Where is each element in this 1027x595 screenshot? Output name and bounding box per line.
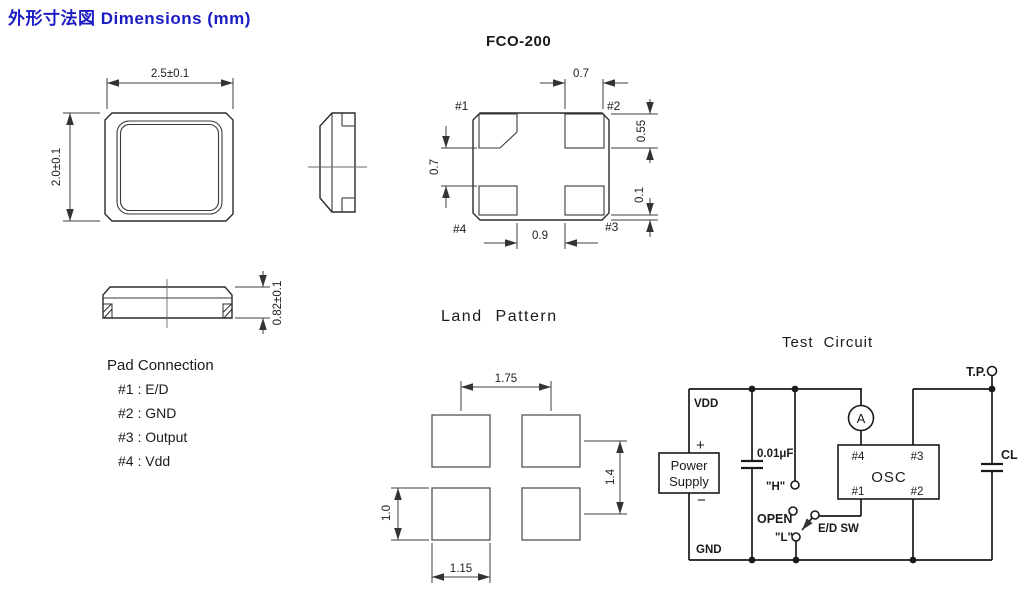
junction-node (793, 557, 800, 564)
dim-land-pad-width: 1.15 (450, 563, 472, 575)
land-pad-height-dimension: 1.0 (381, 488, 429, 540)
junction-node (749, 386, 756, 393)
vdd-label: VDD (694, 398, 718, 410)
thickness-dimension: 0.82±0.1 (235, 271, 284, 334)
pad-connection-item-4: #4 : Vdd (118, 453, 170, 469)
front-outline (103, 287, 232, 318)
package-top-inner-2 (121, 125, 219, 211)
row-gap-dimension: 0.7 (429, 126, 477, 208)
height-dimension: 2.0±0.1 (51, 113, 100, 221)
package-front-view: 0.82±0.1 (103, 271, 284, 334)
datasheet-drawing: 外形寸法図 Dimensions (mm) FCO-200 2.5±0.1 2.… (0, 0, 1027, 595)
h-level-label: "H" (766, 481, 785, 493)
pad-connection: Pad Connection #1 : E/D #2 : GND #3 : Ou… (107, 357, 214, 469)
land-pad-top-left (432, 415, 490, 467)
pad-4 (479, 186, 517, 215)
package-side-view (308, 113, 367, 212)
dim-row-gap: 0.7 (429, 159, 441, 175)
osc-label: OSC (871, 469, 907, 486)
package-top-view: 2.5±0.1 2.0±0.1 (51, 68, 233, 221)
pad-connection-item-2: #2 : GND (118, 405, 176, 421)
col-gap-dimension: 0.9 (484, 223, 598, 249)
ammeter-label: A (857, 411, 866, 426)
junction-node (989, 386, 996, 393)
osc-pin3-label: #3 (911, 451, 924, 463)
power-supply-line1: Power (671, 458, 709, 473)
land-pad-bottom-right (522, 488, 580, 540)
land-pattern: Land Pattern 1.75 1.4 1.0 1.15 (381, 308, 627, 583)
switch-arm (802, 518, 812, 530)
junction-node (910, 557, 917, 564)
side-outline (320, 113, 355, 212)
dim-pad-height: 0.55 (636, 120, 648, 142)
pad-connection-title: Pad Connection (107, 357, 214, 374)
land-pattern-title: Land Pattern (441, 308, 558, 325)
land-pad-width-dimension: 1.15 (432, 543, 490, 583)
open-label: OPEN (757, 512, 792, 526)
pad-2 (565, 114, 604, 148)
dim-row-pitch: 1.4 (605, 468, 617, 485)
pad-connection-item-3: #3 : Output (118, 429, 187, 445)
h-terminal (791, 481, 799, 489)
part-number: FCO-200 (486, 33, 551, 50)
pad-connection-item-1: #1 : E/D (118, 381, 169, 397)
package-top-outline (105, 113, 233, 221)
power-supply-line2: Supply (669, 474, 709, 489)
pad-1 (479, 114, 517, 148)
dim-pad-width: 0.7 (573, 68, 589, 80)
l-terminal (792, 533, 800, 541)
switch-pole-terminal (811, 511, 819, 519)
row-pitch-dimension: 1.4 (584, 441, 627, 514)
dim-edge-gap: 0.1 (634, 187, 646, 203)
ed-switch-label: E/D SW (818, 523, 859, 535)
l-level-label: "L" (775, 532, 793, 544)
bypass-cap-label: 0.01μF (757, 448, 793, 460)
osc-pin1-label: #1 (852, 486, 865, 498)
osc-pin2-label: #2 (911, 486, 924, 498)
junction-node (749, 557, 756, 564)
pad-1-label: #1 (455, 99, 469, 113)
gnd-label: GND (696, 544, 722, 556)
test-point-terminal (988, 367, 997, 376)
bottom-outline (473, 113, 609, 220)
dim-thickness: 0.82±0.1 (272, 281, 284, 326)
page-title: 外形寸法図 Dimensions (mm) (8, 8, 251, 28)
width-dimension: 2.5±0.1 (107, 68, 233, 109)
test-point-label: T.P. (966, 365, 986, 379)
plus-label: + (696, 437, 705, 454)
pad-3 (565, 186, 604, 215)
package-top-inner-1 (117, 121, 222, 214)
col-pitch-dimension: 1.75 (461, 373, 551, 411)
test-circuit: Test Circuit Power Supply + − VDD GND 0.… (659, 334, 1018, 563)
load-cap-label: CL (1001, 448, 1018, 462)
land-pad-bottom-left (432, 488, 490, 540)
pad-3-label: #3 (605, 220, 619, 234)
dim-height: 2.0±0.1 (51, 148, 63, 186)
minus-label: − (697, 492, 706, 509)
test-circuit-title: Test Circuit (782, 334, 873, 351)
junction-node (792, 386, 799, 393)
package-bottom-view: #1 #2 #3 #4 0.7 0.55 0.1 (429, 68, 658, 249)
dim-col-gap: 0.9 (532, 230, 548, 242)
dim-land-pad-height: 1.0 (381, 505, 393, 521)
drawing-canvas: 外形寸法図 Dimensions (mm) FCO-200 2.5±0.1 2.… (0, 0, 1027, 595)
pad-2-label: #2 (607, 99, 621, 113)
pad-4-label: #4 (453, 222, 467, 236)
dim-col-pitch: 1.75 (495, 373, 517, 385)
land-pad-top-right (522, 415, 580, 467)
dim-width: 2.5±0.1 (151, 68, 189, 80)
osc-pin4-label: #4 (852, 451, 865, 463)
